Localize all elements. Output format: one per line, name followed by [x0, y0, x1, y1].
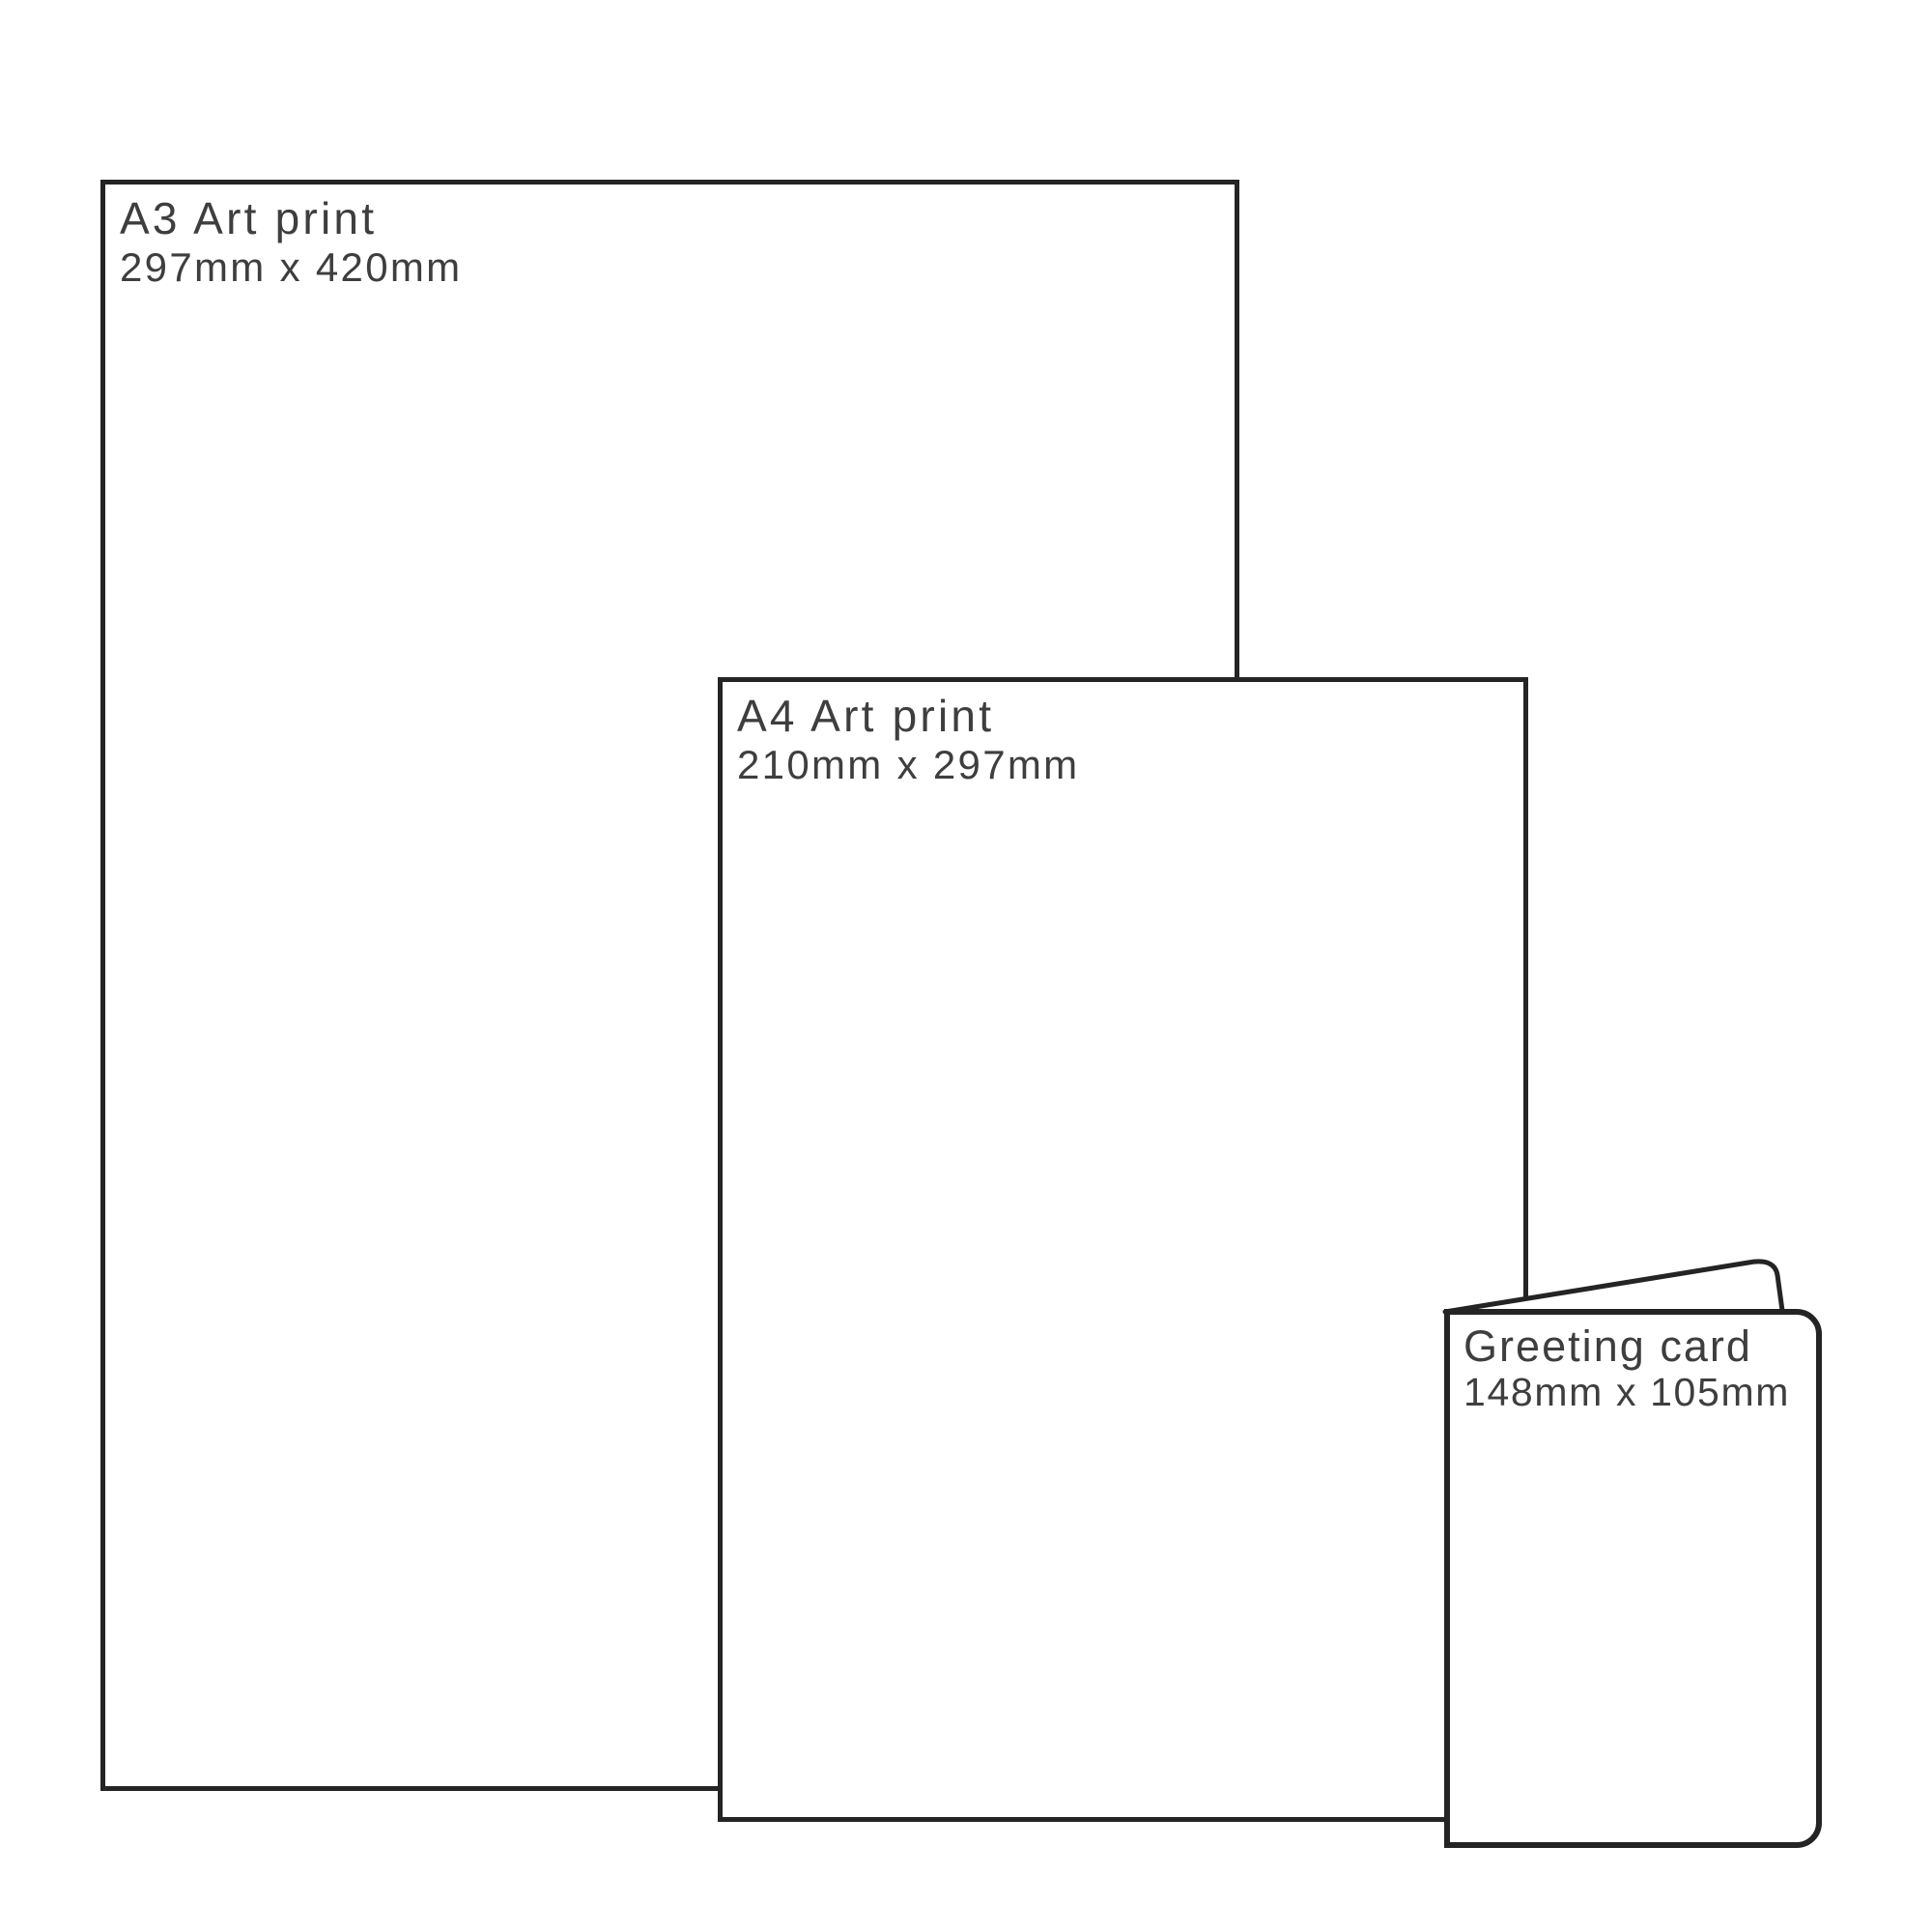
- size-comparison-diagram: A3 Art print 297mm x 420mm A4 Art print …: [0, 0, 1932, 1932]
- a4-print-label: A4 Art print 210mm x 297mm: [723, 682, 1523, 787]
- greeting-card-label: Greeting card 148mm x 105mm: [1450, 1315, 1816, 1415]
- a3-print-label: A3 Art print 297mm x 420mm: [105, 185, 1235, 290]
- greeting-card-front-outline: Greeting card 148mm x 105mm: [1444, 1309, 1822, 1848]
- a3-print-dimensions: 297mm x 420mm: [120, 244, 1229, 290]
- a4-print-title: A4 Art print: [737, 692, 1518, 742]
- greeting-card-dimensions: 148mm x 105mm: [1463, 1371, 1812, 1415]
- a4-print-outline: A4 Art print 210mm x 297mm: [718, 677, 1528, 1822]
- greeting-card-title: Greeting card: [1463, 1322, 1812, 1371]
- a4-print-dimensions: 210mm x 297mm: [737, 742, 1518, 787]
- a3-print-title: A3 Art print: [120, 194, 1229, 244]
